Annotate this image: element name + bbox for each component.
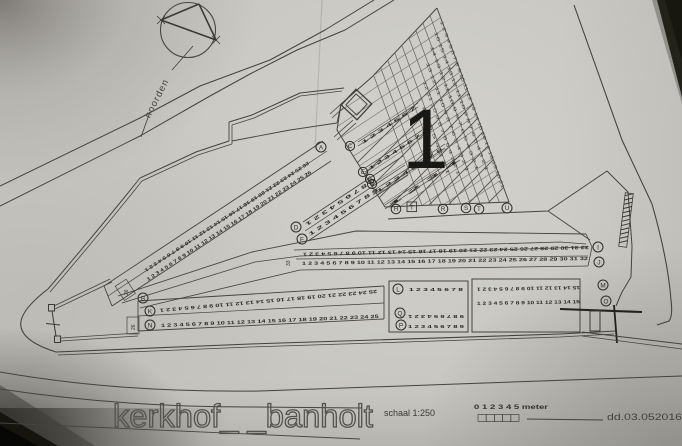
svg-text:1 2 3 4 5 6 7 8: 1 2 3 4 5 6 7 8 [409,287,464,292]
svg-text:E: E [361,170,365,176]
svg-text:T: T [410,206,414,212]
svg-text:R: R [441,207,446,213]
svg-text:C: C [348,144,353,150]
svg-text:M: M [600,282,605,289]
svg-text:O: O [604,298,609,305]
svg-text:U: U [505,206,509,212]
svg-text:T: T [477,207,481,213]
svg-text:G: G [370,182,375,188]
svg-text:kerkhof_ _banholt: kerkhof_ _banholt [113,398,373,434]
svg-text:dd.03.052016: dd.03.052016 [607,412,682,423]
svg-text:schaal 1:250: schaal 1:250 [384,408,435,418]
svg-text:1: 1 [402,92,449,186]
svg-text:9 8 7 6 5 4 3 2 1: 9 8 7 6 5 4 3 2 1 [407,314,464,319]
svg-text:D: D [294,224,299,231]
svg-text:0 1 2 3 4 5 meter: 0 1 2 3 4 5 meter [474,404,549,411]
svg-text:K: K [148,308,153,315]
svg-text:S: S [464,206,468,212]
svg-text:26: 26 [131,324,137,330]
svg-text:I: I [597,244,599,251]
svg-text:A: A [319,144,324,151]
svg-text:P: P [399,322,403,329]
svg-text:H: H [394,207,398,213]
svg-text:33: 33 [286,260,292,266]
svg-text:L: L [396,286,400,293]
svg-text:Q: Q [398,310,403,317]
svg-text:J: J [597,259,600,266]
svg-text:1 2 3 4 5 6 7 8 9: 1 2 3 4 5 6 7 8 9 [408,324,465,329]
svg-text:N: N [148,322,153,329]
